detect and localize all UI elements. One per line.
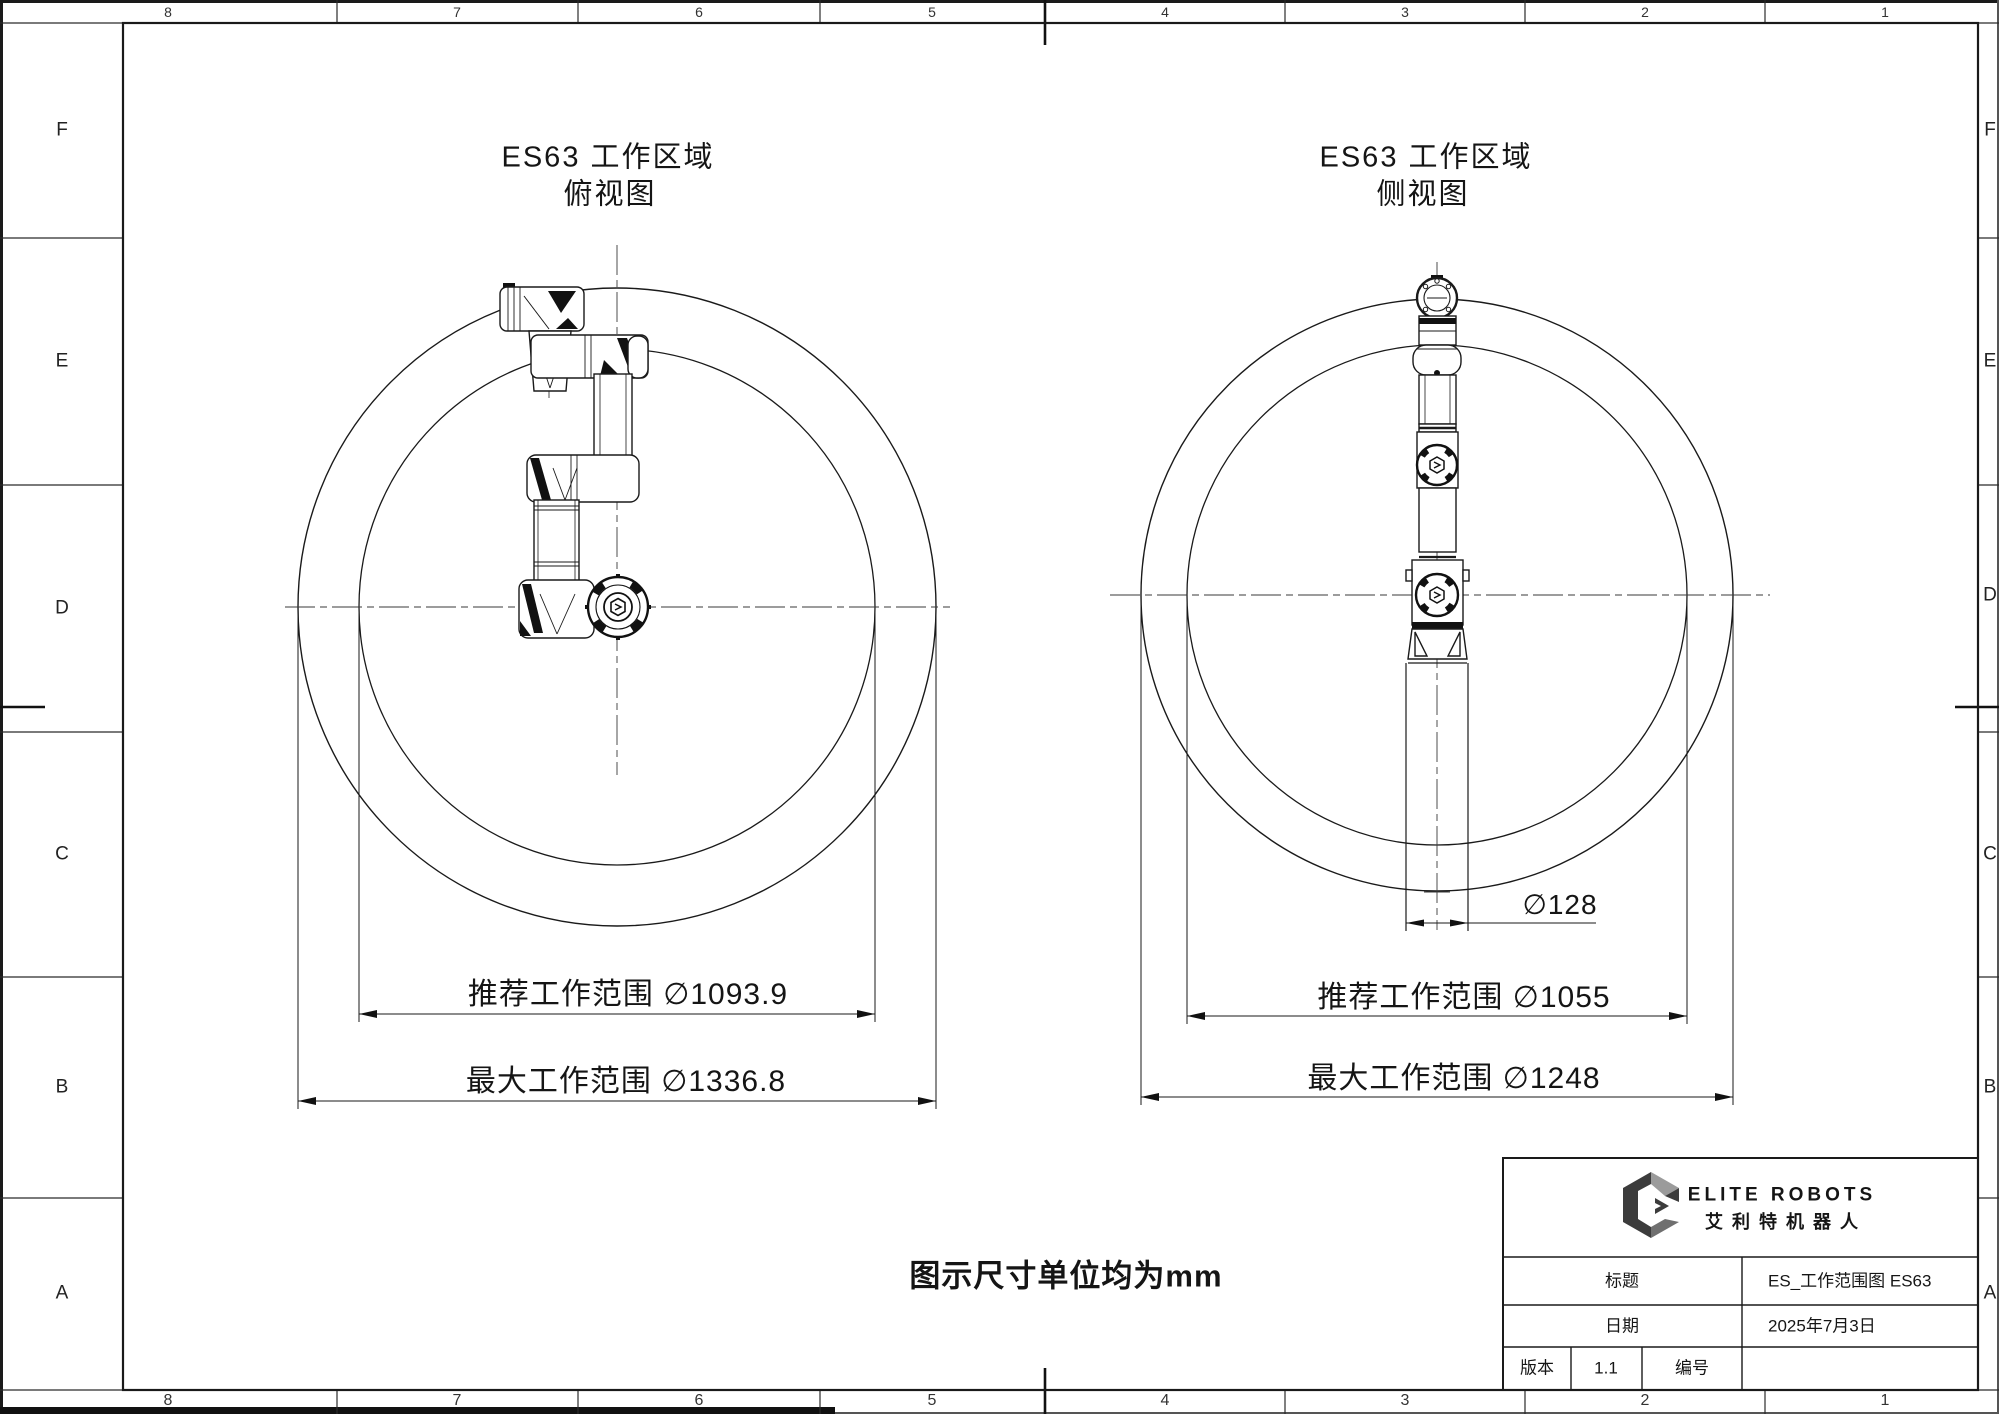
side-view	[1110, 262, 1770, 1105]
zone-row-right-D: D	[1983, 586, 1997, 605]
title-block-title-label: 标题	[1605, 1273, 1639, 1290]
brand-name-cn: 艾利特机器人	[1705, 1213, 1867, 1231]
zone-col-bottom-6: 6	[695, 1393, 704, 1409]
top-view-robot-drawing	[500, 283, 651, 640]
units-note: 图示尺寸单位均为mm	[909, 1261, 1222, 1292]
title-block-number-label: 编号	[1675, 1360, 1709, 1377]
zone-col-top-3: 3	[1401, 5, 1409, 19]
zone-row-left-A: A	[56, 1284, 69, 1303]
zone-row-right-E: E	[1984, 352, 1997, 371]
zone-row-right-A: A	[1984, 1284, 1997, 1303]
zone-row-left-E: E	[56, 352, 69, 371]
zone-row-left-C: C	[55, 845, 69, 864]
side-view-title: ES63 工作区域	[1320, 144, 1533, 173]
zone-row-right-F: F	[1984, 121, 1996, 140]
zone-col-top-6: 6	[695, 5, 703, 19]
zone-col-top-5: 5	[928, 5, 936, 19]
zone-col-bottom-2: 2	[1641, 1393, 1650, 1409]
side-view-elbow-joint	[1417, 445, 1457, 485]
zone-col-top-8: 8	[164, 5, 172, 19]
elite-robots-logo-icon	[1623, 1172, 1679, 1238]
zone-row-left-B: B	[56, 1078, 69, 1097]
zone-col-top-4: 4	[1161, 5, 1169, 19]
side-view-base-diameter-label: ∅128	[1522, 891, 1597, 919]
zone-col-bottom-1: 1	[1881, 1393, 1890, 1409]
top-view-centerlines	[285, 245, 950, 775]
drawing-sheet: 8 7 6 5 4 3 2 1 8 7 6 5 4 3 2 1 F E D C …	[0, 0, 1999, 1414]
zone-row-right-C: C	[1983, 845, 1997, 864]
zone-col-bottom-4: 4	[1161, 1393, 1170, 1409]
brand-name-en: ELITE ROBOTS	[1688, 1186, 1876, 1205]
top-view-max-range-label: 最大工作范围 ∅1336.8	[466, 1067, 786, 1097]
top-view-recommended-range-label: 推荐工作范围 ∅1093.9	[468, 980, 788, 1010]
side-view-base-joint	[1416, 574, 1458, 616]
title-block-version-value: 1.1	[1594, 1360, 1618, 1377]
zone-row-left-D: D	[55, 599, 69, 618]
title-block-title-value: ES_工作范围图 ES63	[1768, 1273, 1931, 1290]
zone-col-bottom-7: 7	[453, 1393, 462, 1409]
title-block-date-value: 2025年7月3日	[1768, 1318, 1876, 1335]
side-view-subtitle: 侧视图	[1376, 181, 1469, 210]
side-view-robot-drawing	[1406, 275, 1469, 931]
zone-col-top-2: 2	[1641, 5, 1649, 19]
top-view-base-flange	[585, 574, 651, 640]
top-view-subtitle: 俯视图	[563, 181, 656, 210]
zone-col-bottom-8: 8	[164, 1393, 173, 1409]
zone-col-bottom-3: 3	[1401, 1393, 1410, 1409]
zone-col-top-1: 1	[1881, 5, 1889, 19]
title-block-date-label: 日期	[1605, 1318, 1639, 1335]
zone-row-left-F: F	[56, 121, 68, 140]
zone-col-top-7: 7	[453, 5, 461, 19]
side-view-max-range-label: 最大工作范围 ∅1248	[1307, 1064, 1600, 1094]
zone-row-right-B: B	[1984, 1078, 1997, 1097]
top-view-title: ES63 工作区域	[502, 144, 715, 173]
zone-col-bottom-5: 5	[928, 1393, 937, 1409]
title-block-version-label: 版本	[1520, 1360, 1554, 1377]
side-view-recommended-range-label: 推荐工作范围 ∅1055	[1317, 983, 1610, 1013]
